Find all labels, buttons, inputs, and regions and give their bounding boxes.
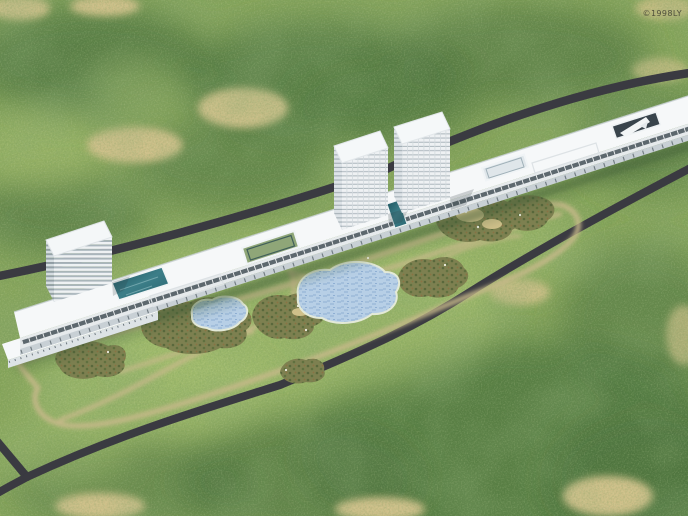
aerial-rendering [0,0,688,516]
rendering-canvas: ©1998LY [0,0,688,516]
shrub-patch [280,359,325,384]
copyright-watermark: ©1998LY [643,9,682,18]
